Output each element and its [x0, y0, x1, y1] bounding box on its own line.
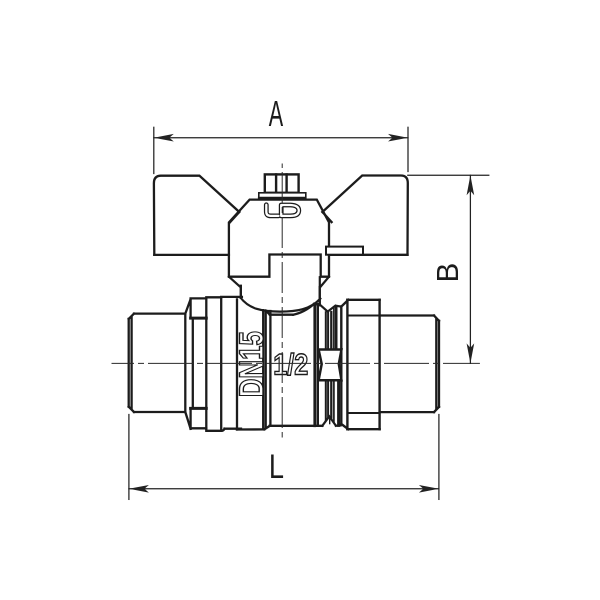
svg-text:L: L [269, 447, 284, 486]
svg-text:B: B [431, 263, 465, 283]
svg-text:DN15: DN15 [234, 331, 271, 397]
svg-text:1/2: 1/2 [273, 348, 308, 382]
svg-text:A: A [269, 94, 284, 134]
